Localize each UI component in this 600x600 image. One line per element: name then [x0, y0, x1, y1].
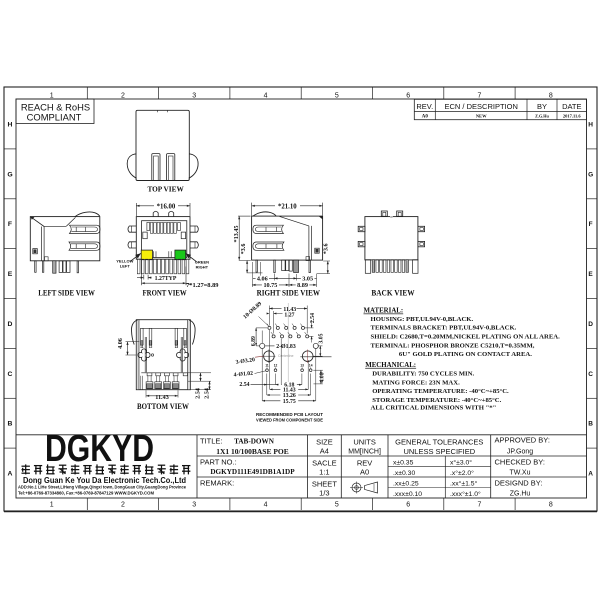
svg-text:7*1.27=8.89: 7*1.27=8.89 — [186, 282, 218, 289]
svg-text:C: C — [8, 371, 13, 378]
svg-text:VIEWED FROM COMPONENT SIDE: VIEWED FROM COMPONENT SIDE — [256, 418, 323, 423]
svg-text:COMPLIANT: COMPLIANT — [27, 112, 82, 123]
svg-text:DURABILITY: 750 CYCLES MIN.: DURABILITY: 750 CYCLES MIN. — [372, 371, 474, 378]
svg-text:2.54: 2.54 — [239, 382, 249, 388]
svg-text:.x°±2.0°: .x°±2.0° — [450, 469, 474, 477]
svg-text:2.54: 2.54 — [310, 313, 316, 323]
svg-text:APPROVED BY:: APPROVED BY: — [495, 435, 550, 444]
svg-text:1.27: 1.27 — [284, 313, 294, 319]
svg-text:TERMINAL: PHOSPHOR BRONZE C521: TERMINAL: PHOSPHOR BRONZE C5210,T=0.35MM… — [371, 342, 535, 349]
svg-text:x±0.35: x±0.35 — [393, 459, 414, 466]
svg-text:12: 12 — [274, 364, 278, 368]
svg-text:FRONT VIEW: FRONT VIEW — [143, 289, 188, 298]
svg-text:.xx°±1.5°: .xx°±1.5° — [450, 479, 478, 487]
svg-text:C: C — [588, 371, 593, 378]
svg-text:2.54: 2.54 — [194, 388, 201, 399]
svg-text:5: 5 — [335, 92, 339, 99]
svg-text:SACLE: SACLE — [312, 458, 337, 467]
svg-text:1.27TYP: 1.27TYP — [155, 276, 177, 282]
svg-text:6U" GOLD PLATING ON CONTACT AR: 6U" GOLD PLATING ON CONTACT AREA. — [399, 351, 532, 358]
svg-text:BY: BY — [537, 102, 547, 111]
svg-text:DGKYD: DGKYD — [45, 428, 154, 470]
svg-text:UNITS: UNITS — [353, 437, 376, 446]
svg-text:NEW: NEW — [476, 114, 487, 119]
svg-text:STORAGE TEMPERATURE: -40°C~+85: STORAGE TEMPERATURE: -40°C~+85°C. — [372, 397, 501, 404]
svg-text:*13.45: *13.45 — [233, 225, 240, 242]
svg-text:OPERATING TEMPERATURE: -40°C~+: OPERATING TEMPERATURE: -40°C~+85°C. — [372, 388, 509, 395]
svg-text:BACK VIEW: BACK VIEW — [371, 289, 415, 298]
svg-text:B: B — [588, 421, 593, 428]
svg-text:Z.G.Hu: Z.G.Hu — [535, 114, 549, 119]
svg-text:CHECKED BY:: CHECKED BY: — [495, 457, 545, 466]
svg-text:ECN / DESCRIPTION: ECN / DESCRIPTION — [445, 102, 518, 111]
svg-text:E: E — [588, 271, 593, 278]
svg-text:REV: REV — [357, 458, 372, 467]
svg-text:11.43: 11.43 — [155, 394, 169, 401]
svg-text:MATERIAL:: MATERIAL: — [364, 308, 404, 315]
svg-text:2.54: 2.54 — [203, 388, 210, 399]
svg-text:A: A — [588, 471, 593, 478]
svg-text:D: D — [588, 321, 593, 328]
svg-text:.xxx°±1.0°: .xxx°±1.0° — [450, 490, 481, 498]
svg-text:A0: A0 — [360, 467, 369, 476]
svg-text:H: H — [8, 121, 13, 128]
svg-text:.xx±0.25: .xx±0.25 — [393, 480, 419, 487]
svg-text:G: G — [588, 171, 593, 178]
svg-text:11: 11 — [265, 364, 269, 368]
svg-text:1X1 10/100BASE POE: 1X1 10/100BASE POE — [216, 447, 289, 456]
svg-text:D: D — [8, 321, 13, 328]
svg-text:6: 6 — [406, 92, 410, 99]
svg-text:.xxx±0.10: .xxx±0.10 — [393, 491, 422, 498]
svg-text:3: 3 — [192, 92, 196, 99]
svg-text:6.89: 6.89 — [251, 336, 257, 346]
svg-text:13: 13 — [175, 345, 179, 349]
svg-text:2017.11.6: 2017.11.6 — [563, 114, 582, 119]
svg-text:MATING FORCE: 23N MAX.: MATING FORCE: 23N MAX. — [372, 379, 460, 386]
svg-text:H: H — [588, 121, 593, 128]
svg-text:*3.6: *3.6 — [240, 244, 247, 255]
svg-text:1: 1 — [50, 92, 54, 99]
svg-text:F: F — [589, 221, 593, 228]
svg-text:*16.00: *16.00 — [157, 204, 176, 211]
svg-text:RECOMMENDED PCB LAYOUT: RECOMMENDED PCB LAYOUT — [256, 412, 323, 417]
svg-text:8: 8 — [549, 92, 553, 99]
svg-text:4.06: 4.06 — [117, 338, 124, 349]
svg-text:*3.6: *3.6 — [323, 243, 330, 254]
svg-text:15.75: 15.75 — [283, 399, 296, 405]
svg-text:MM[INCH]: MM[INCH] — [348, 448, 381, 455]
svg-text:ALL CRITICAL DIMENSIONS WITH ": ALL CRITICAL DIMENSIONS WITH "*" — [371, 404, 497, 411]
svg-text:4.08: 4.08 — [319, 372, 325, 382]
svg-text:2-Ø1.83: 2-Ø1.83 — [276, 344, 296, 350]
svg-text:RIGHT: RIGHT — [196, 265, 209, 270]
svg-text:REV.: REV. — [416, 102, 433, 111]
svg-text:RIGHT SIDE VIEW: RIGHT SIDE VIEW — [257, 289, 321, 298]
svg-text:3.05: 3.05 — [319, 333, 325, 343]
svg-text:A4: A4 — [320, 446, 329, 455]
svg-text:TERMINALS BRACKET: PBT,UL94V-0: TERMINALS BRACKET: PBT,UL94V-0,BLACK. — [371, 325, 517, 332]
svg-text:REMARK:: REMARK: — [200, 479, 234, 488]
svg-text:14: 14 — [309, 364, 313, 368]
svg-text:6: 6 — [406, 502, 410, 509]
svg-text:12: 12 — [149, 345, 153, 349]
svg-text:ZG.Hu: ZG.Hu — [510, 491, 531, 498]
svg-text:13: 13 — [300, 364, 304, 368]
svg-text:E: E — [8, 271, 13, 278]
svg-text:TW.Xu: TW.Xu — [509, 470, 530, 477]
svg-text:4: 4 — [264, 502, 268, 509]
svg-text:LEFT: LEFT — [120, 264, 131, 269]
svg-text:DATE: DATE — [562, 102, 581, 111]
svg-text:*21.10: *21.10 — [278, 204, 297, 211]
svg-text:1: 1 — [50, 502, 54, 509]
svg-text:BOTTOM VIEW: BOTTOM VIEW — [137, 402, 190, 411]
svg-text:1:1: 1:1 — [319, 467, 329, 476]
svg-text:PART NO.:: PART NO.: — [200, 458, 237, 467]
svg-text:7: 7 — [477, 502, 481, 509]
svg-text:MECHANICAL:: MECHANICAL: — [365, 362, 416, 369]
svg-text:SHIELD: C2680,T=0.20MM,NICKEL: SHIELD: C2680,T=0.20MM,NICKEL PLATING ON… — [371, 334, 561, 341]
svg-text:TAB-DOWN: TAB-DOWN — [234, 438, 275, 446]
svg-text:A0: A0 — [422, 115, 429, 120]
svg-text:DGKYD111E491DB1A1DP: DGKYD111E491DB1A1DP — [210, 468, 295, 476]
svg-text:TITLE:: TITLE: — [200, 437, 223, 446]
svg-text:.x±0.30: .x±0.30 — [393, 470, 415, 477]
svg-text:4: 4 — [264, 92, 268, 99]
svg-text:SHEET: SHEET — [312, 479, 337, 488]
svg-text:8: 8 — [549, 502, 553, 509]
svg-text:A: A — [8, 471, 13, 478]
svg-text:x°±3.0°: x°±3.0° — [450, 458, 472, 466]
svg-text:G: G — [7, 171, 12, 178]
svg-text:SIZE: SIZE — [316, 437, 333, 446]
svg-text:1/3: 1/3 — [319, 488, 329, 497]
svg-text:3: 3 — [192, 502, 196, 509]
svg-text:F: F — [8, 221, 12, 228]
svg-text:DESIGND BY:: DESIGND BY: — [495, 478, 543, 487]
svg-text:TOP VIEW: TOP VIEW — [147, 184, 183, 193]
svg-text:HOUSING: PBT,UL94V-0,BLACK.: HOUSING: PBT,UL94V-0,BLACK. — [371, 316, 474, 323]
svg-text:5: 5 — [335, 502, 339, 509]
svg-text:11: 11 — [140, 345, 144, 349]
svg-text:ADD:No.1 LiHe Street,LiHeng Vi: ADD:No.1 LiHe Street,LiHeng Village,Qing… — [18, 485, 187, 490]
svg-text:JP.Gong: JP.Gong — [507, 449, 533, 456]
svg-text:Tel:+86-0769-87334860, Fax:+86: Tel:+86-0769-87334860, Fax:+86-0769-8784… — [18, 491, 155, 496]
svg-text:2: 2 — [121, 92, 125, 99]
svg-text:Centerline: Centerline — [278, 354, 294, 358]
svg-text:B: B — [8, 421, 13, 428]
svg-text:2: 2 — [121, 502, 125, 509]
svg-text:UNLESS SPECIFIED: UNLESS SPECIFIED — [403, 447, 475, 456]
svg-text:GENERAL TOLERANCES: GENERAL TOLERANCES — [395, 437, 483, 446]
svg-text:LEFT SIDE VIEW: LEFT SIDE VIEW — [38, 289, 95, 298]
svg-text:14: 14 — [183, 345, 187, 349]
svg-text:7: 7 — [477, 92, 481, 99]
